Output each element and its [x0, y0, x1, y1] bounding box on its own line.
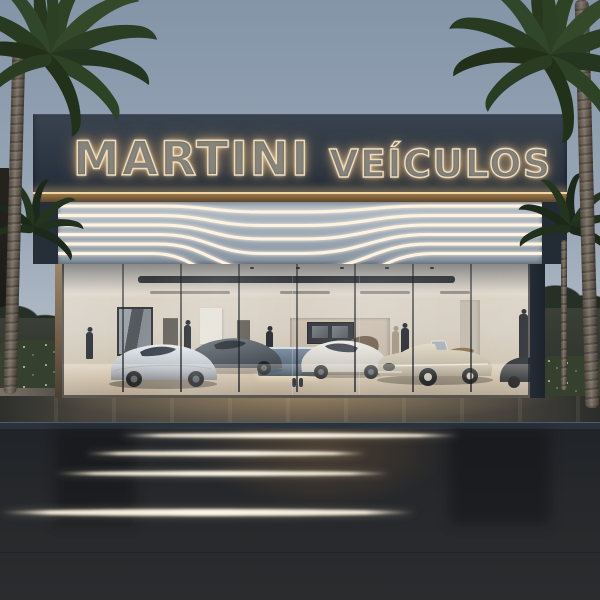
light-streak-1 [120, 433, 460, 438]
wood-soffit [33, 194, 567, 202]
wet-asphalt [0, 429, 600, 600]
corner-pillar [530, 264, 545, 398]
glass-showroom [55, 264, 545, 398]
wave-lines-graphic [58, 202, 542, 264]
light-streak-4 [0, 509, 415, 516]
palm-tree-left [0, 0, 172, 152]
pavement-seam [0, 552, 600, 553]
forecourt-sidewalk [0, 396, 600, 422]
canopy-shadow [62, 264, 530, 294]
palm-trunk-right-small [561, 240, 567, 390]
showroom-side-wall [55, 264, 62, 398]
dealership-scene: MARTINI VEÍCULOS [0, 0, 600, 600]
wave-light-canopy [58, 202, 542, 264]
palm-tree-right [428, 0, 600, 175]
showroom-light-reflection [150, 429, 480, 559]
light-streak-3 [55, 471, 390, 476]
pillar-reflection-right [450, 429, 550, 524]
light-streak-2 [85, 451, 367, 456]
